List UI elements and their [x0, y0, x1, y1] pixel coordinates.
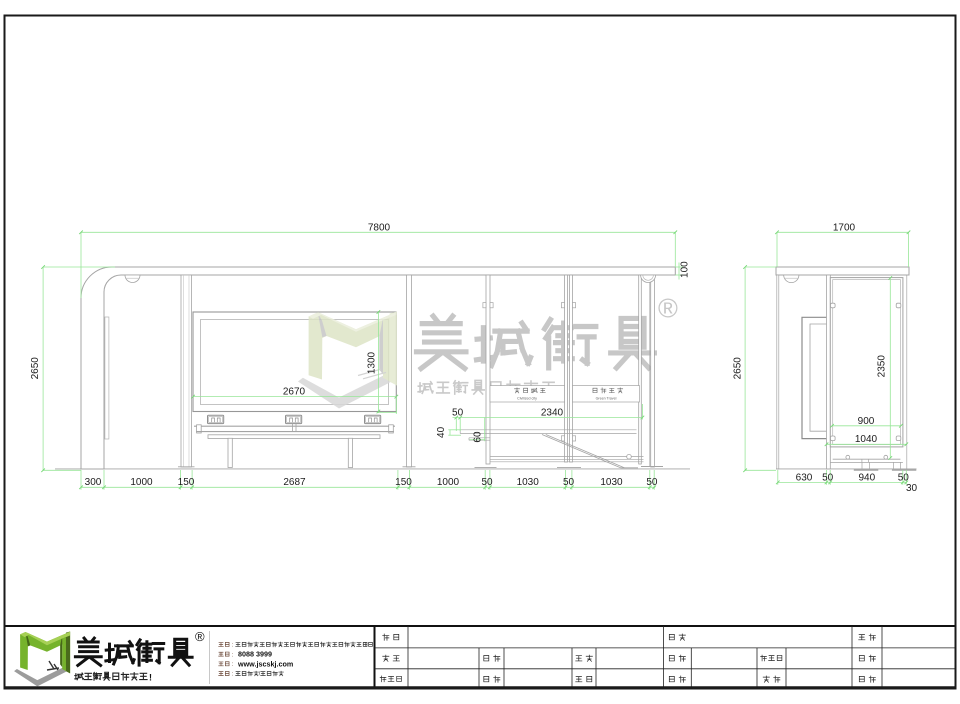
svg-text:1300: 1300: [366, 351, 377, 374]
svg-text:300: 300: [85, 477, 102, 488]
svg-text:7800: 7800: [368, 223, 391, 234]
svg-text:100: 100: [680, 261, 691, 278]
svg-text:Green Travel: Green Travel: [596, 397, 617, 401]
svg-text:1040: 1040: [855, 434, 878, 445]
svg-text:/: /: [259, 672, 261, 678]
svg-text:1030: 1030: [517, 477, 540, 488]
svg-text:30: 30: [906, 483, 918, 494]
svg-text:2670: 2670: [283, 387, 306, 398]
svg-text:!: !: [149, 672, 152, 682]
svg-text:®: ®: [195, 629, 205, 644]
svg-text:60: 60: [472, 431, 483, 443]
svg-text:1700: 1700: [833, 223, 856, 234]
svg-text:2687: 2687: [283, 477, 306, 488]
svg-text::: :: [232, 643, 234, 649]
svg-text:150: 150: [178, 477, 195, 488]
svg-text:www.jscskj.com: www.jscskj.com: [237, 659, 293, 668]
svg-text:2650: 2650: [732, 357, 743, 380]
svg-text:2340: 2340: [541, 408, 564, 419]
svg-text:8088 3999: 8088 3999: [238, 650, 272, 659]
svg-text:1030: 1030: [600, 477, 623, 488]
svg-text:50: 50: [452, 408, 464, 419]
svg-text:40: 40: [436, 426, 447, 438]
svg-text:®: ®: [658, 294, 678, 324]
svg-text:1000: 1000: [130, 477, 153, 488]
svg-text:50: 50: [563, 477, 575, 488]
svg-text:1000: 1000: [437, 477, 460, 488]
svg-text:2650: 2650: [30, 357, 41, 380]
svg-text:50: 50: [646, 477, 658, 488]
svg-text::: :: [232, 662, 234, 668]
svg-text:50: 50: [481, 477, 493, 488]
svg-text:900: 900: [858, 416, 875, 427]
svg-text:50: 50: [822, 472, 834, 483]
svg-text:50: 50: [898, 472, 910, 483]
svg-text:940: 940: [858, 472, 875, 483]
svg-text:150: 150: [395, 477, 412, 488]
svg-text:2350: 2350: [877, 355, 888, 378]
svg-text:Civilized city: Civilized city: [517, 397, 537, 401]
svg-text::: :: [232, 672, 234, 678]
svg-text:630: 630: [796, 472, 813, 483]
svg-text::: :: [232, 652, 234, 658]
